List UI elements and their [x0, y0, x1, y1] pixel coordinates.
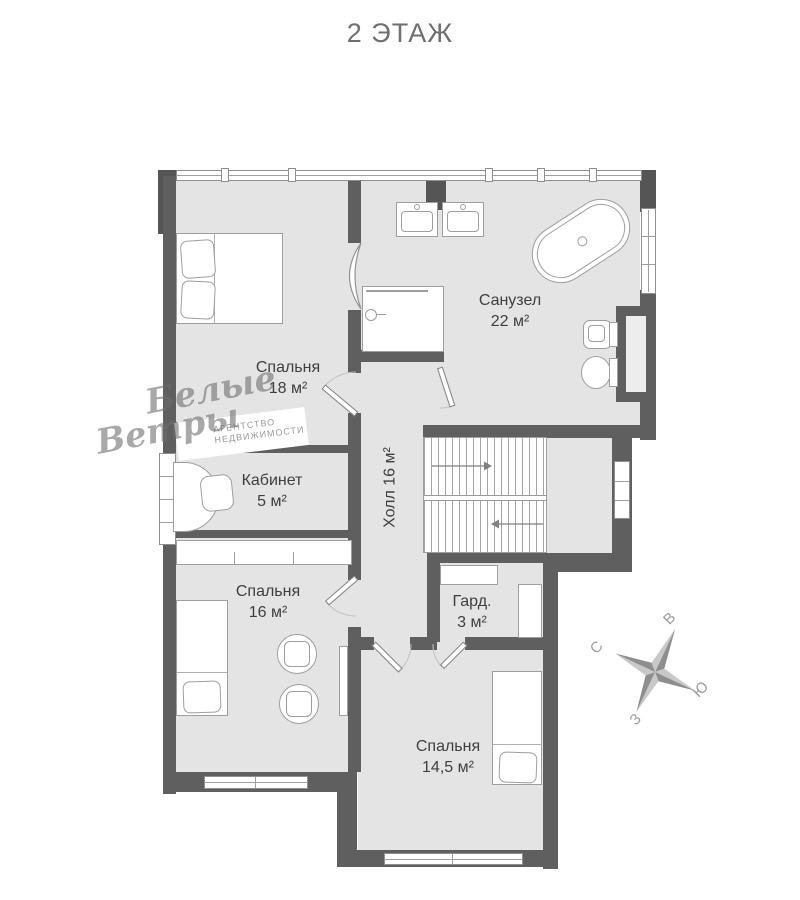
room-name: Санузел — [460, 290, 560, 311]
curved-door-leaf — [350, 243, 362, 309]
room-label-office: Кабинет 5 м² — [222, 470, 322, 512]
room-name: Спальня — [398, 736, 498, 757]
room-label-bathroom: Санузел 22 м² — [460, 290, 560, 332]
room-label-wardrobe: Гард. 3 м² — [422, 591, 522, 633]
room-label-hall: Холл 16 м² — [380, 423, 401, 553]
compass-star — [597, 610, 716, 731]
door-leaf — [441, 642, 467, 668]
room-label-bedroom16: Спальня 16 м² — [218, 581, 318, 623]
room-area: 5 м² — [222, 491, 322, 512]
door-leaf — [372, 642, 402, 672]
room-area: 16 м² — [218, 602, 318, 623]
door-arc — [327, 603, 356, 616]
room-label-bedroom14: Спальня 14,5 м² — [398, 736, 498, 778]
door-arc — [400, 644, 411, 670]
room-name: Спальня — [218, 581, 318, 602]
door-leaf — [326, 576, 358, 605]
room-name: Кабинет — [222, 470, 322, 491]
stairs-arrowhead — [484, 462, 492, 471]
stairs-arrowhead — [491, 520, 499, 529]
room-name: Холл 16 м² — [380, 423, 401, 553]
floor-plan-page: 2 ЭТАЖ — [0, 0, 800, 900]
door-leaf — [438, 367, 455, 407]
page-title: 2 ЭТАЖ — [0, 18, 800, 49]
door-arc — [433, 644, 442, 667]
room-area: 22 м² — [460, 311, 560, 332]
room-area: 14,5 м² — [398, 757, 498, 778]
room-area: 3 м² — [422, 612, 522, 633]
room-name: Гард. — [422, 591, 522, 612]
